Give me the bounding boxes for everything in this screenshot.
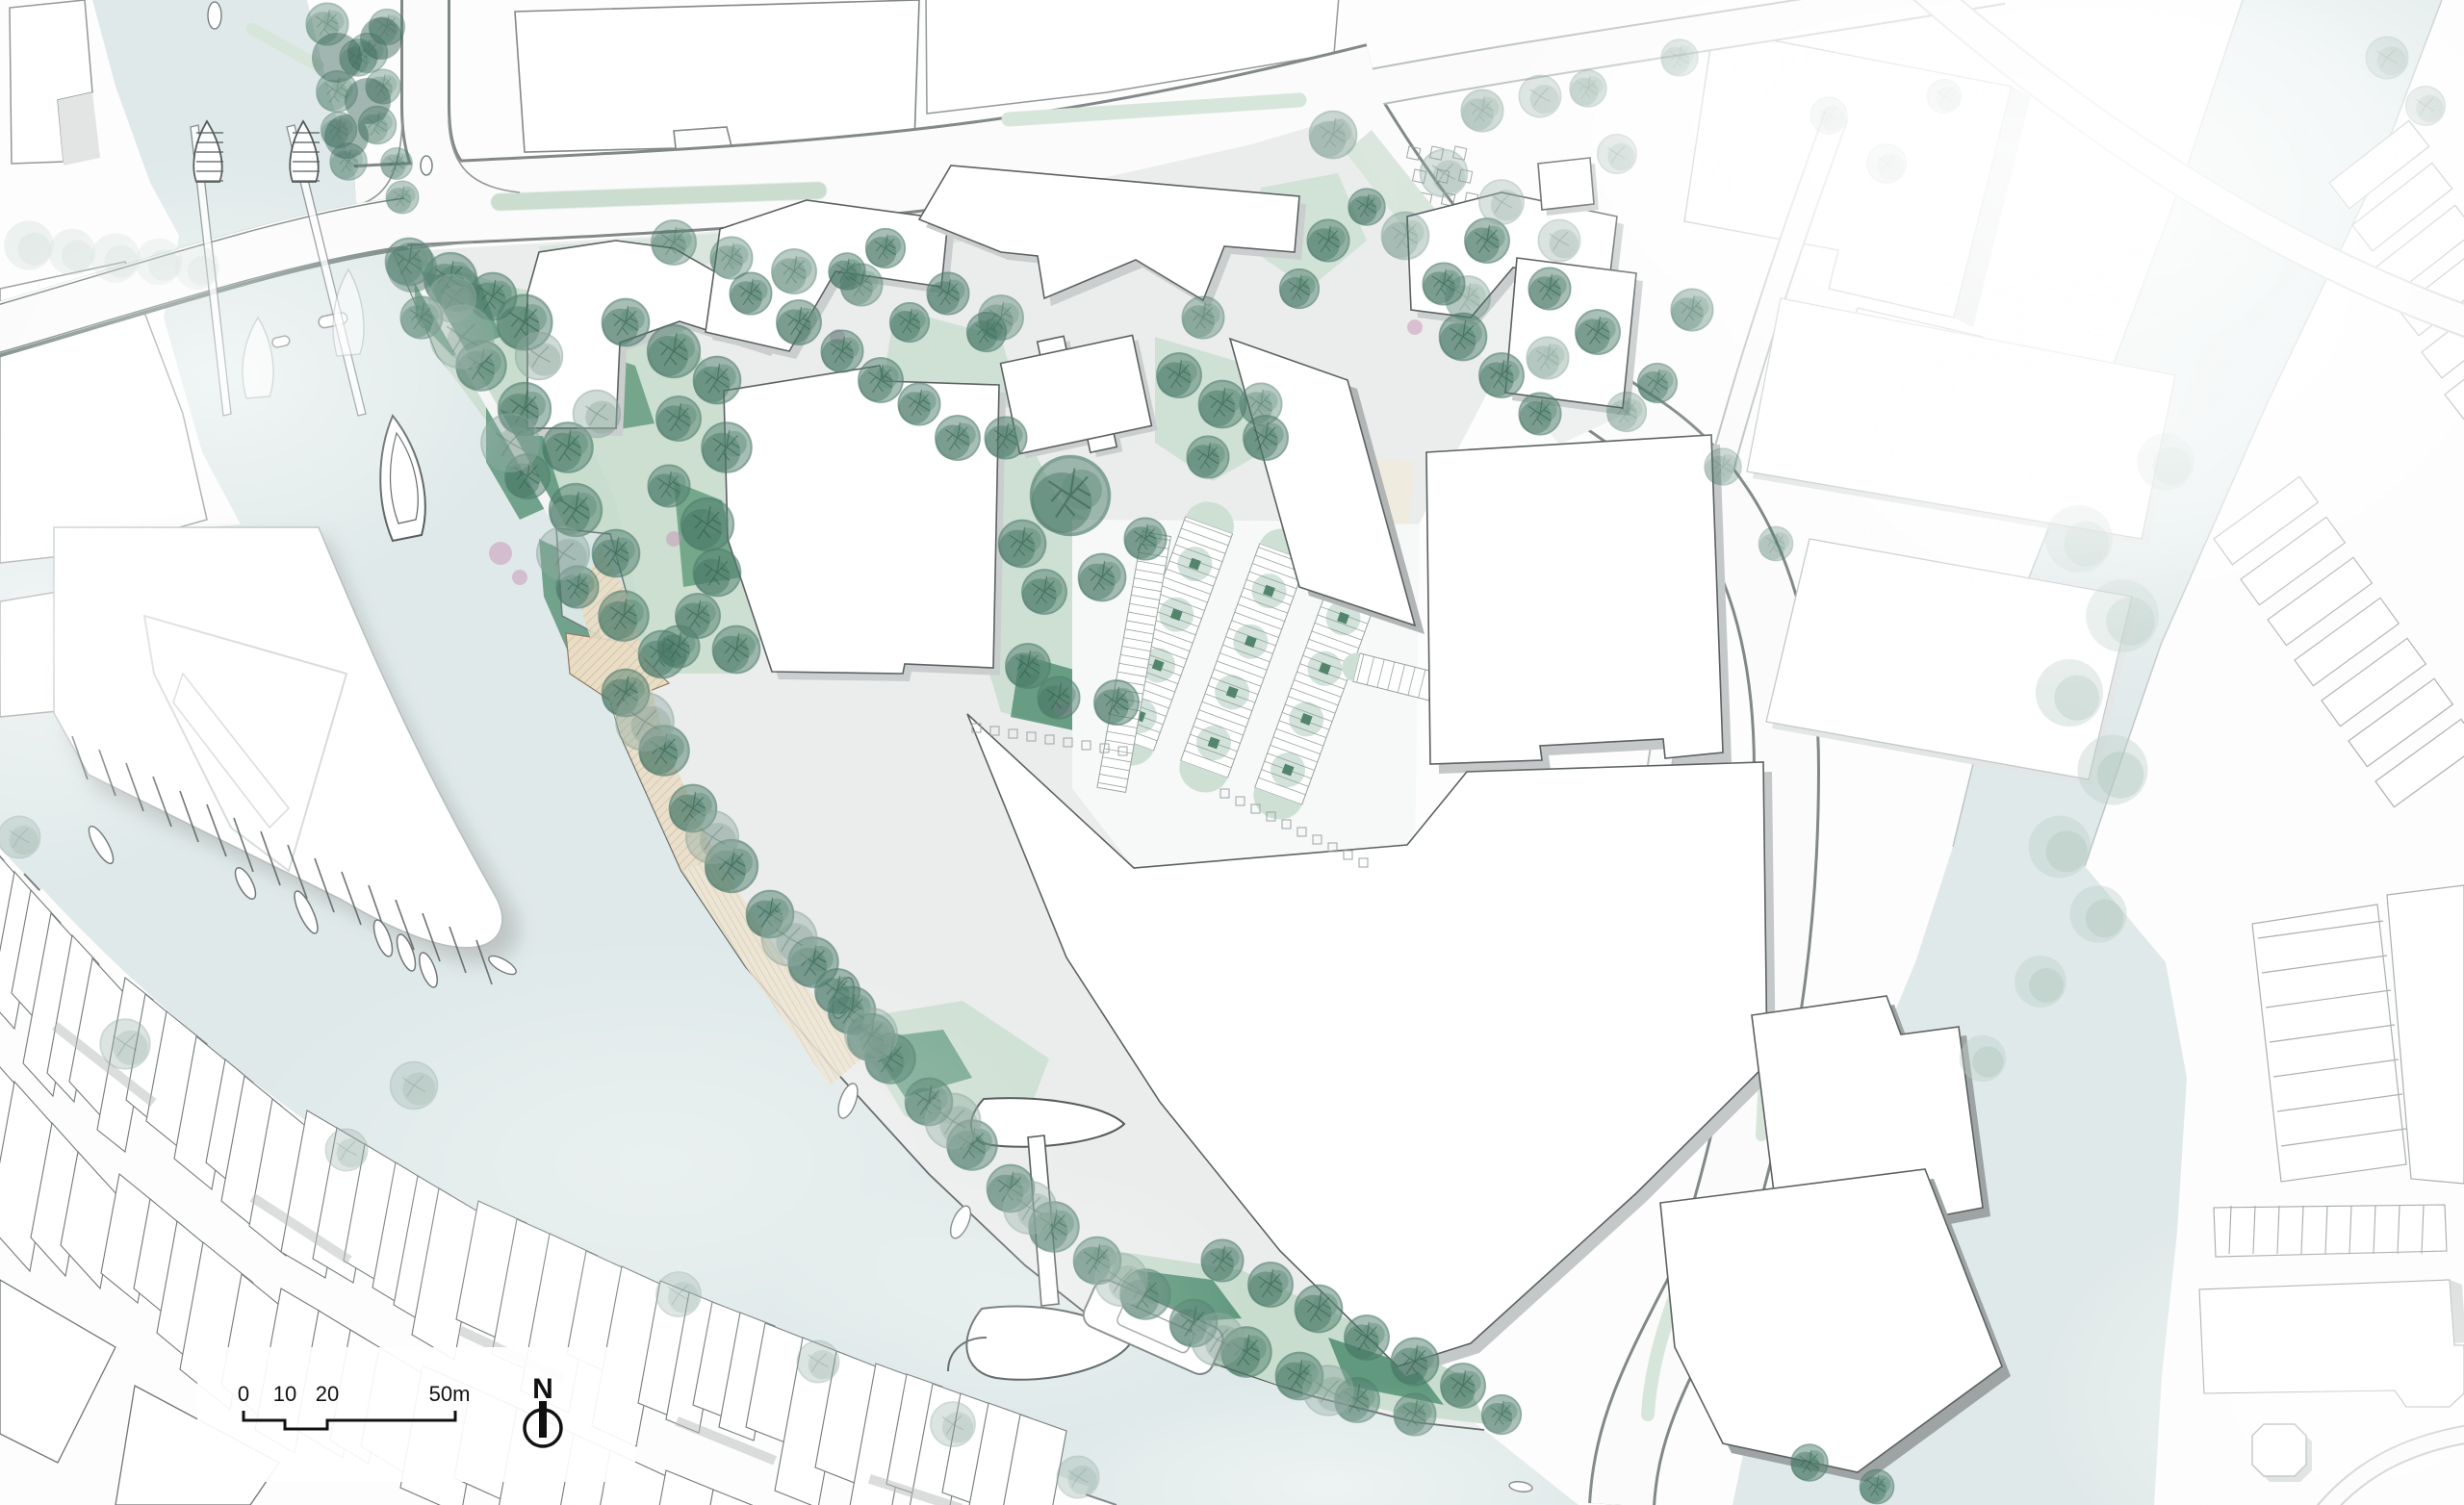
svg-text:50m: 50m (429, 1382, 471, 1406)
svg-text:20: 20 (316, 1382, 339, 1406)
svg-text:N: N (532, 1373, 553, 1405)
svg-text:0: 0 (238, 1382, 249, 1406)
svg-text:10: 10 (273, 1382, 296, 1406)
